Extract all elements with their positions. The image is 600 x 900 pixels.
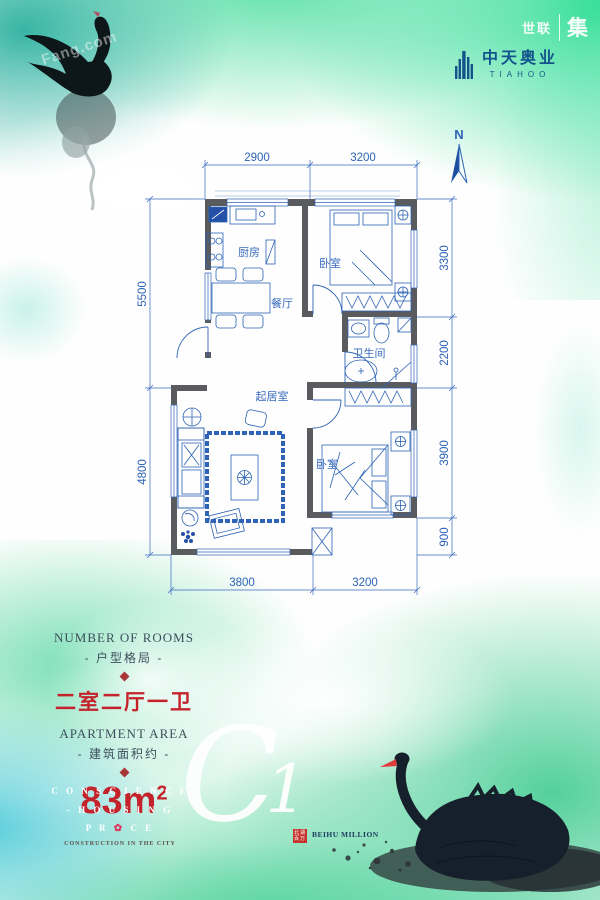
eave-lines [215,191,400,196]
red-seal-icon: 北湖 百万 [293,829,307,843]
living-furniture [178,408,283,543]
slogan-price-post: C E [130,823,154,833]
slogan-price-pre: P R [86,823,109,833]
seal-text-bottom: 百万 [293,836,307,842]
dim-left-2: 4800 [137,459,149,485]
slogan-line2: - H O U S I N G [30,805,210,815]
room-label-living: 起居室 [256,389,289,403]
room-label-bedroom2: 卧室 [316,457,338,471]
dim-bottom-2: 3200 [352,577,378,589]
corner-watermark-right: 集 [567,12,588,42]
dim-right-2: 2200 [439,340,451,366]
watercolor-left-wisp [0,230,110,390]
swan-beak [93,11,100,17]
diamond-icon [119,672,129,682]
swan-beak [380,759,397,767]
dim-right-4: 900 [439,527,451,546]
room-label-bedroom1: 卧室 [319,256,341,270]
rooms-title-cn: - 户型格局 - [14,649,234,666]
floor-plan: N [120,105,480,635]
dim-bottom-1: 3800 [229,577,255,589]
rooms-title-en: NUMBER OF ROOMS [14,630,234,646]
dim-top-2: 3200 [350,152,376,164]
slogan-block: C O N S C I E N C E - H O U S I N G P R … [30,786,210,847]
bedroom1-furniture [330,206,411,311]
shaft [312,528,332,555]
poster: Fang.com 世联 集 中天奥业 TIAHOO N [0,0,600,900]
kitchen-furniture [206,206,275,328]
lotus-icon: ✿ [114,823,125,834]
swan-ink-wash [56,89,116,210]
logo-name-en: TIAHOO [482,70,558,79]
room-label-bath: 卫生间 [353,346,386,360]
bedroom2-furniture [322,388,411,515]
furniture [178,206,411,543]
developer-logo: 中天奥业 TIAHOO [455,44,558,79]
corner-watermark-left: 世联 [522,18,552,37]
logo-name-cn: 中天奥业 [482,44,558,68]
room-label-kitchen: 厨房 [238,246,260,259]
watercolor-right-wisp [520,300,600,560]
dim-left-1: 5500 [137,281,149,307]
flower-splat [181,530,195,543]
dim-right-1: 3300 [439,245,451,271]
black-swan-ink-bottom [320,728,600,900]
building-icon [455,51,475,79]
svg-text:N: N [454,127,463,142]
dim-right-3: 3900 [439,440,451,466]
diamond-icon [119,768,129,778]
slogan-line4: CONSTRUCTION IN THE CITY [30,841,210,847]
slogan-line3: P R ✿ C E [30,823,210,834]
corner-watermark-divider [559,14,560,41]
north-arrow: N [451,127,467,183]
corner-watermark: 世联 集 [522,12,588,42]
dim-top-1: 2900 [244,152,270,164]
room-label-dining: 餐厅 [271,296,293,310]
dimension-lines [145,160,457,595]
unit-code-number: 1 [265,751,307,828]
slogan-line1: C O N S C I E N C E [30,786,210,796]
